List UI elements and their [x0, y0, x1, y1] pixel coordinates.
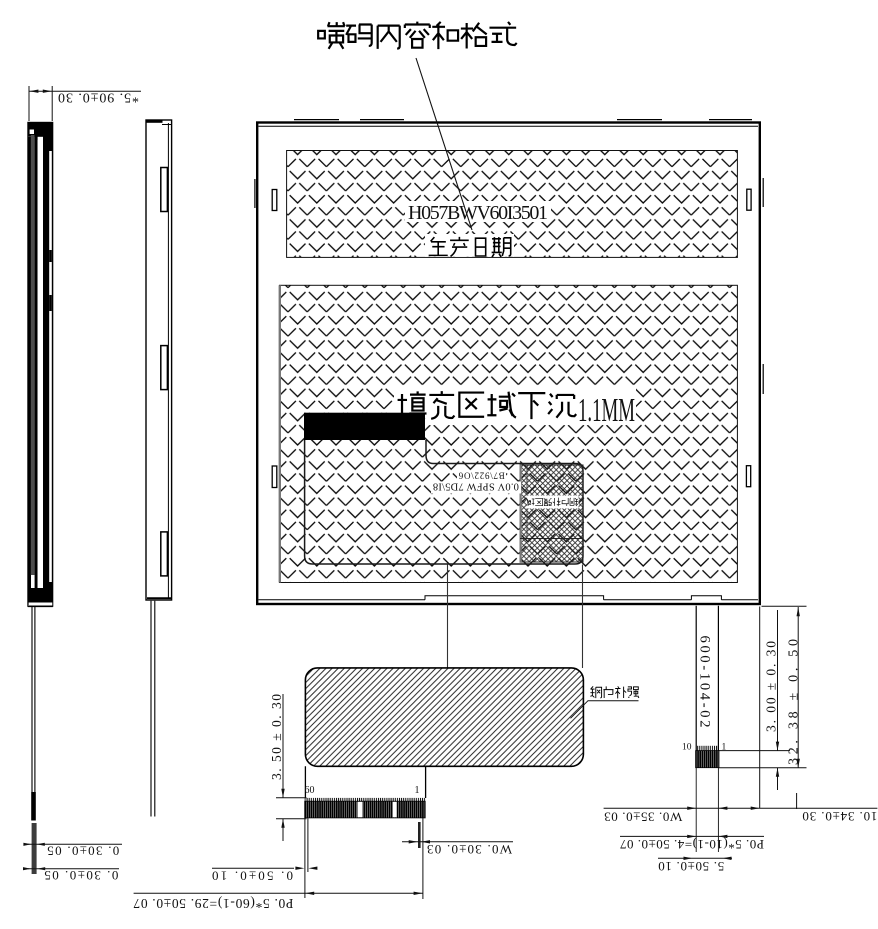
svg-text:*5. 90±0. 30: *5. 90±0. 30: [58, 90, 139, 105]
svg-text:5. 50±0. 10: 5. 50±0. 10: [658, 859, 724, 874]
svg-text:0. 30±0. 05: 0. 30±0. 05: [44, 868, 118, 883]
svg-text:W0. 35±0. 03: W0. 35±0. 03: [604, 810, 682, 825]
svg-text:10: 10: [682, 743, 692, 753]
svg-text:W0. 30±0. 03: W0. 30±0. 03: [427, 842, 512, 857]
svg-text:H057BWV60I3501: H057BWV60I3501: [408, 202, 548, 224]
svg-text:3. 50 ± 0. 30: 3. 50 ± 0. 30: [269, 694, 284, 780]
svg-text:P0. 5*(60-1)=29. 50±0. 07: P0. 5*(60-1)=29. 50±0. 07: [133, 896, 293, 911]
svg-text:3. 00 ± 0. 30: 3. 00 ± 0. 30: [764, 641, 779, 732]
svg-text:P0. 5*(10-1)=4. 50±0. 07: P0. 5*(10-1)=4. 50±0. 07: [620, 837, 765, 852]
svg-text:0. 30±0. 05: 0. 30±0. 05: [47, 844, 119, 859]
svg-text:1.1MM: 1.1MM: [578, 392, 635, 429]
svg-text:10. 34±0. 30: 10. 34±0. 30: [802, 809, 877, 824]
svg-text:0.0V SPFW 7D5\I8: 0.0V SPFW 7D5\I8: [433, 481, 519, 492]
svg-text:60: 60: [305, 785, 315, 796]
svg-text:1: 1: [415, 785, 420, 796]
svg-text:B7\922\O6: B7\922\O6: [458, 471, 505, 481]
